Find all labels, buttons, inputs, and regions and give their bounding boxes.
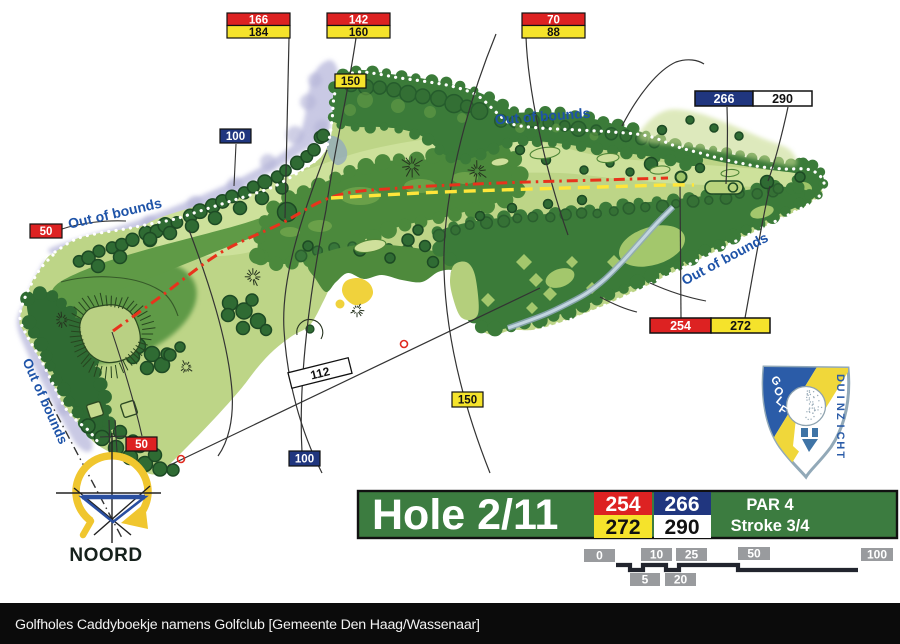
svg-text:D: D (834, 374, 846, 382)
svg-text:50: 50 (747, 547, 761, 561)
svg-text:T: T (834, 451, 846, 458)
svg-text:272: 272 (605, 516, 640, 539)
svg-text:266: 266 (714, 92, 735, 106)
svg-text:150: 150 (458, 395, 477, 407)
svg-text:Stroke 3/4: Stroke 3/4 (731, 517, 811, 535)
svg-text:50: 50 (135, 439, 148, 451)
svg-text:0: 0 (596, 549, 603, 563)
svg-text:100: 100 (867, 548, 887, 562)
svg-text:88: 88 (547, 27, 560, 39)
svg-text:254: 254 (605, 493, 640, 516)
svg-text:70: 70 (547, 14, 560, 26)
svg-text:5: 5 (642, 573, 649, 587)
svg-text:254: 254 (670, 319, 691, 333)
svg-text:I: I (834, 424, 846, 427)
svg-text:N: N (834, 403, 846, 411)
svg-text:272: 272 (730, 319, 751, 333)
svg-text:U: U (834, 384, 846, 392)
svg-text:290: 290 (772, 92, 793, 106)
svg-text:290: 290 (664, 516, 699, 539)
svg-text:NOORD: NOORD (69, 545, 142, 566)
svg-text:PAR 4: PAR 4 (746, 496, 794, 514)
svg-text:142: 142 (349, 14, 368, 26)
svg-text:Hole 2/11: Hole 2/11 (372, 491, 558, 539)
svg-text:266: 266 (664, 493, 699, 516)
svg-text:C: C (834, 432, 846, 440)
svg-text:160: 160 (349, 27, 368, 39)
svg-text:150: 150 (341, 76, 360, 88)
svg-text:Z: Z (834, 413, 846, 420)
svg-text:H: H (834, 441, 846, 449)
svg-text:100: 100 (295, 454, 314, 466)
svg-text:10: 10 (650, 548, 664, 562)
svg-text:50: 50 (40, 226, 53, 238)
svg-text:25: 25 (685, 548, 699, 562)
svg-text:20: 20 (674, 573, 688, 587)
svg-text:184: 184 (249, 27, 269, 39)
svg-text:100: 100 (226, 131, 245, 143)
svg-text:166: 166 (249, 14, 268, 26)
svg-text:Golfholes Caddyboekje namens G: Golfholes Caddyboekje namens Golfclub [G… (15, 617, 480, 633)
svg-text:I: I (834, 396, 846, 399)
